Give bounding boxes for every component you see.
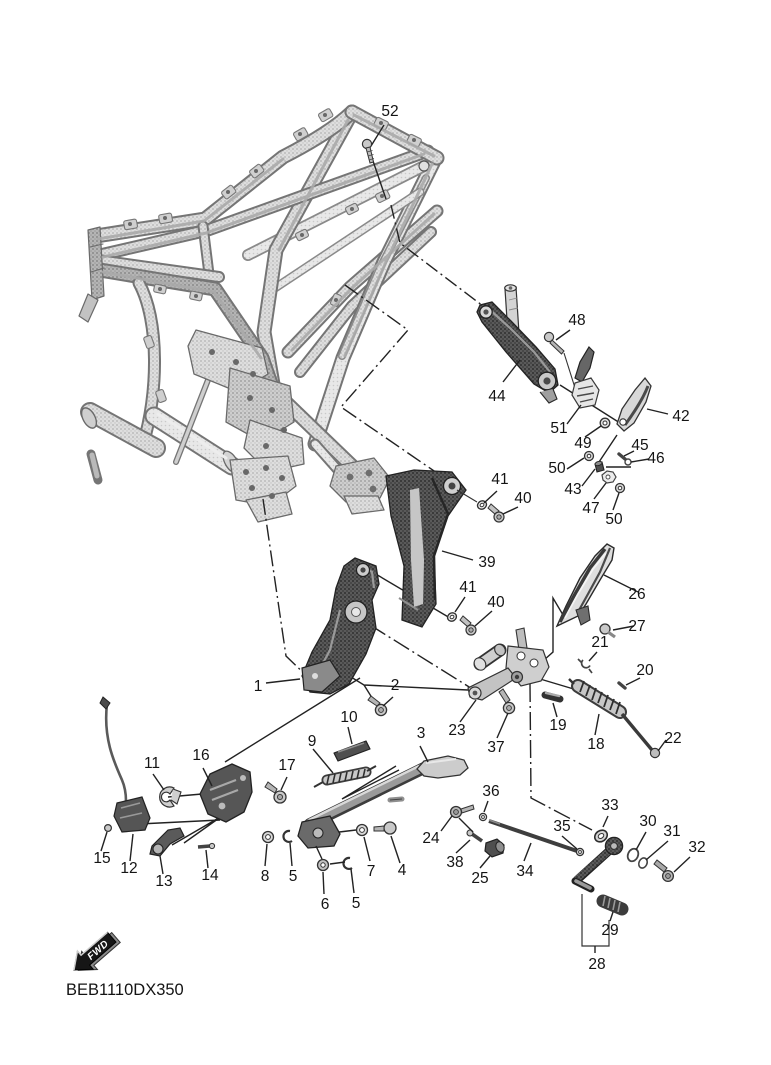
svg-text:5: 5 (289, 868, 298, 885)
svg-text:46: 46 (647, 450, 664, 467)
svg-text:48: 48 (568, 312, 585, 329)
svg-text:37: 37 (487, 739, 504, 756)
svg-text:21: 21 (591, 634, 608, 651)
svg-text:18: 18 (587, 736, 604, 753)
svg-text:27: 27 (628, 618, 645, 635)
svg-text:28: 28 (588, 956, 605, 973)
svg-text:7: 7 (367, 863, 376, 880)
svg-text:39: 39 (478, 554, 495, 571)
svg-text:33: 33 (601, 797, 618, 814)
svg-text:11: 11 (144, 755, 160, 772)
svg-text:35: 35 (553, 818, 570, 835)
svg-text:3: 3 (417, 725, 426, 742)
svg-text:52: 52 (381, 103, 398, 120)
svg-text:4: 4 (398, 862, 407, 879)
svg-text:10: 10 (340, 709, 358, 726)
svg-text:20: 20 (636, 662, 654, 679)
svg-text:43: 43 (564, 481, 581, 498)
svg-text:8: 8 (261, 868, 270, 885)
svg-text:29: 29 (601, 922, 618, 939)
svg-text:41: 41 (491, 471, 508, 488)
svg-text:16: 16 (192, 747, 209, 764)
svg-text:51: 51 (550, 420, 567, 437)
svg-text:47: 47 (582, 500, 599, 517)
svg-text:26: 26 (628, 586, 645, 603)
svg-text:9: 9 (308, 733, 317, 750)
svg-text:50: 50 (605, 511, 623, 528)
svg-text:30: 30 (639, 813, 657, 830)
svg-text:31: 31 (663, 823, 680, 840)
svg-text:42: 42 (672, 408, 689, 425)
svg-text:50: 50 (548, 460, 566, 477)
svg-text:49: 49 (574, 435, 591, 452)
svg-text:38: 38 (446, 854, 463, 871)
svg-text:44: 44 (488, 388, 506, 405)
svg-text:17: 17 (278, 757, 295, 774)
svg-text:45: 45 (631, 437, 648, 454)
svg-text:23: 23 (448, 722, 465, 739)
svg-text:22: 22 (664, 730, 681, 747)
svg-text:24: 24 (422, 830, 440, 847)
svg-text:40: 40 (487, 594, 505, 611)
svg-text:19: 19 (549, 717, 566, 734)
svg-text:12: 12 (120, 860, 137, 877)
svg-text:BEB1110DX350: BEB1110DX350 (66, 981, 184, 999)
svg-text:25: 25 (471, 870, 488, 887)
svg-text:13: 13 (155, 873, 172, 890)
svg-text:15: 15 (93, 850, 110, 867)
svg-text:36: 36 (482, 783, 499, 800)
svg-text:14: 14 (201, 867, 219, 884)
svg-text:5: 5 (352, 895, 361, 912)
svg-text:41: 41 (459, 579, 476, 596)
svg-text:2: 2 (391, 677, 400, 694)
svg-text:40: 40 (514, 490, 532, 507)
svg-text:6: 6 (321, 896, 330, 913)
svg-text:34: 34 (516, 863, 534, 880)
svg-text:1: 1 (254, 678, 263, 695)
svg-text:32: 32 (688, 839, 705, 856)
